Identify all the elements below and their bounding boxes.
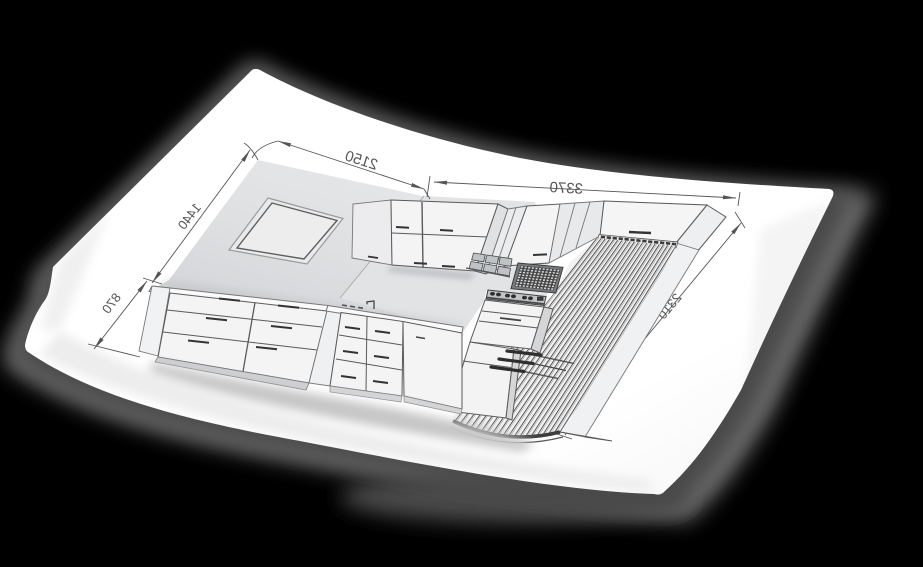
svg-text:3370: 3370	[549, 179, 583, 198]
